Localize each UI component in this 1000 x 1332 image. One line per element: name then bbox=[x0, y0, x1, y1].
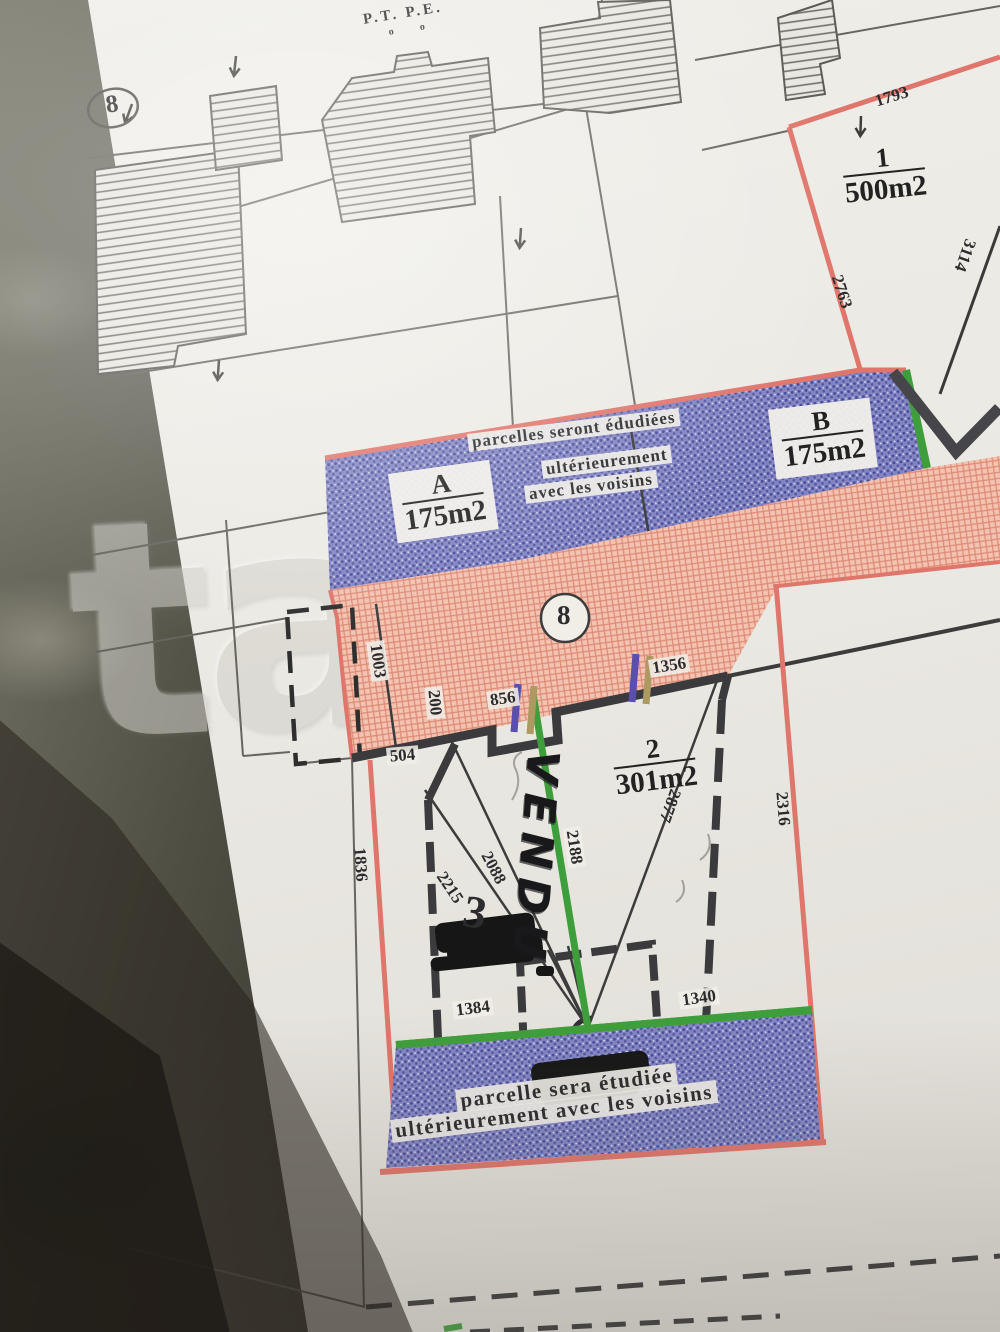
measurement-2316: 2316 bbox=[772, 788, 794, 829]
parcelA-label: A 175m2 bbox=[388, 460, 499, 543]
bottom-dashed-lines bbox=[366, 1256, 1000, 1332]
photo-of-cadastral-plan: ta bbox=[0, 0, 1000, 1332]
parcel1-label: 1 500m2 bbox=[830, 135, 939, 215]
building-blocks bbox=[95, 0, 840, 374]
parcel2-label: 2 301m2 bbox=[600, 726, 710, 808]
measurement-504: 504 bbox=[386, 745, 419, 766]
measurement-1836: 1836 bbox=[350, 844, 371, 885]
parcel1-area: 500m2 bbox=[843, 170, 928, 212]
parcelB-label: B 175m2 bbox=[768, 398, 878, 480]
measurement-200: 200 bbox=[424, 686, 446, 719]
road-circle-label: 8 bbox=[557, 601, 571, 630]
